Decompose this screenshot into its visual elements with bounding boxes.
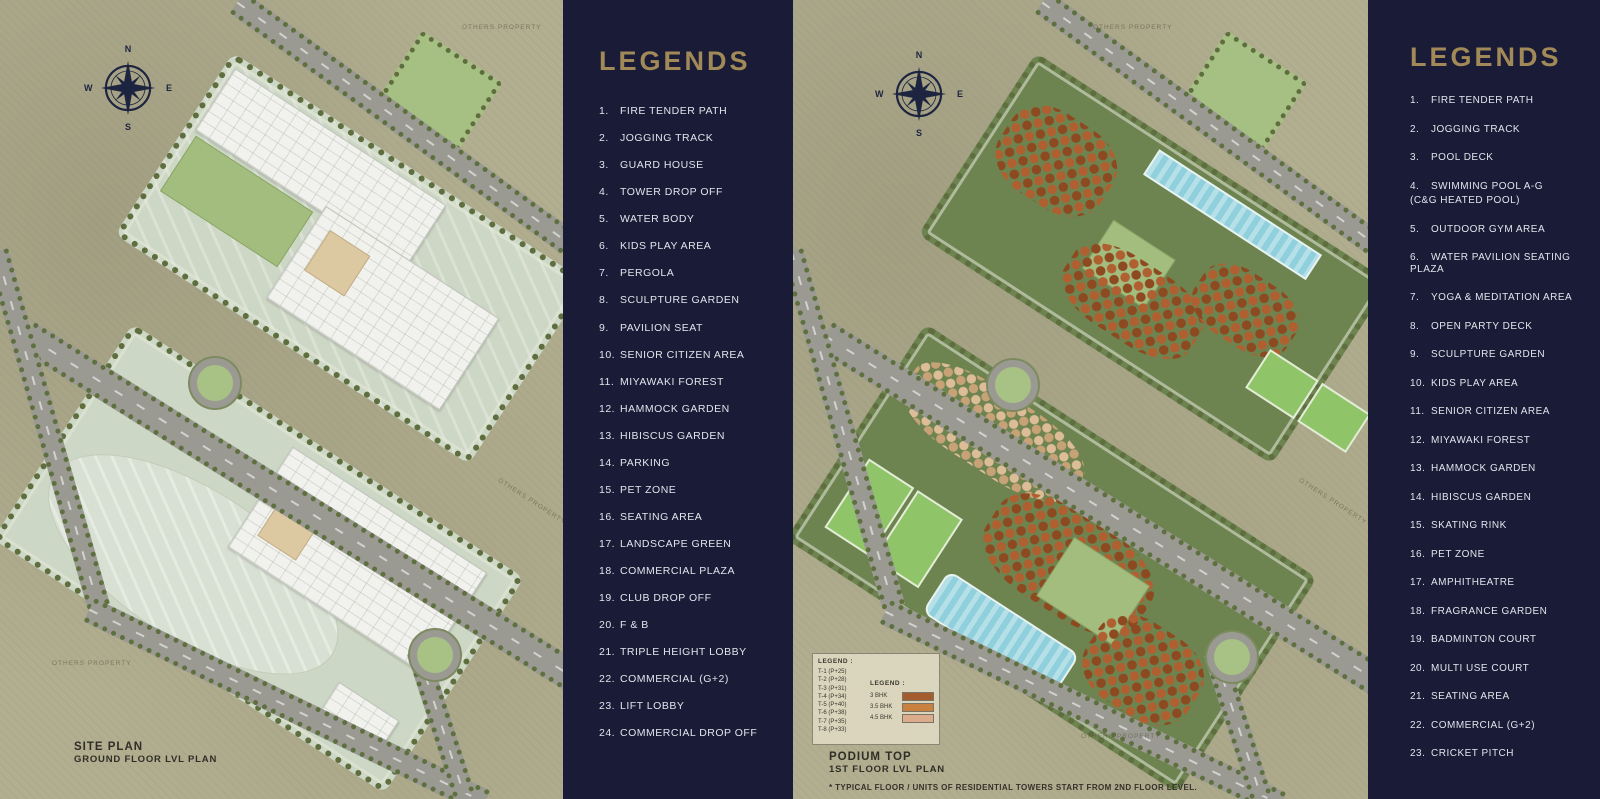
compass-label-s: S xyxy=(916,128,922,138)
item-number: 5. xyxy=(1410,224,1431,236)
compass-label-n: N xyxy=(916,50,923,60)
legend-item: 15.SKATING RINK xyxy=(1410,520,1594,532)
legend-item: 10.KIDS PLAY AREA xyxy=(1410,378,1594,390)
item-label: MULTI USE COURT xyxy=(1431,663,1529,674)
property-label: OTHERS PROPERTY xyxy=(1093,24,1173,31)
bhk-row: 3.5 BHK xyxy=(870,702,934,713)
item-label: HAMMOCK GARDEN xyxy=(620,403,730,415)
item-label: FIRE TENDER PATH xyxy=(620,105,727,117)
compass-label-w: W xyxy=(84,83,93,93)
roundabout xyxy=(190,358,240,408)
legend-item: 22.COMMERCIAL (G+2) xyxy=(599,673,787,685)
tower-cluster xyxy=(981,90,1132,233)
tower-row: T-3 (P+31) xyxy=(818,685,870,693)
bhk-swatch xyxy=(902,692,934,701)
legend-item: 3.GUARD HOUSE xyxy=(599,159,787,171)
item-number: 14. xyxy=(1410,492,1431,504)
legend-item: 1.FIRE TENDER PATH xyxy=(599,105,787,117)
legend-item: 6.WATER PAVILION SEATING PLAZA xyxy=(1410,252,1594,275)
item-number: 6. xyxy=(1410,252,1431,264)
item-label: HIBISCUS GARDEN xyxy=(620,430,725,442)
item-label: TRIPLE HEIGHT LOBBY xyxy=(620,646,747,658)
item-number: 16. xyxy=(1410,549,1431,561)
tower-legend-heading: LEGEND : xyxy=(818,658,934,665)
item-label: COMMERCIAL (G+2) xyxy=(1431,720,1535,731)
item-number: 5. xyxy=(599,213,620,225)
item-label: COMMERCIAL PLAZA xyxy=(620,565,735,577)
legend-panel-left: LEGENDS 1.FIRE TENDER PATH 2.JOGGING TRA… xyxy=(563,0,793,799)
item-label: SENIOR CITIZEN AREA xyxy=(1431,406,1550,417)
site-plan-map: N E S W OTHERS PROPERTY OTHERS PROPERTY … xyxy=(0,0,563,799)
plan-subtitle: GROUND FLOOR LVL PLAN xyxy=(74,754,217,766)
tower-row: T-2 (P+28) xyxy=(818,676,870,684)
legend-item: 12.HAMMOCK GARDEN xyxy=(599,403,787,415)
compass-label-w: W xyxy=(875,89,884,99)
item-number: 15. xyxy=(599,484,620,496)
legend-item: 14.PARKING xyxy=(599,457,787,469)
item-number: 22. xyxy=(599,673,620,685)
item-label: HIBISCUS GARDEN xyxy=(1431,492,1531,503)
legend-title: LEGENDS xyxy=(1368,0,1600,73)
compass-rose-icon xyxy=(885,60,953,128)
item-number: 19. xyxy=(1410,634,1431,646)
item-number: 2. xyxy=(599,132,620,144)
legend-item: 8.SCULPTURE GARDEN xyxy=(599,294,787,306)
legend-item: 18.COMMERCIAL PLAZA xyxy=(599,565,787,577)
legend-item: 20.MULTI USE COURT xyxy=(1410,663,1594,675)
roundabout xyxy=(988,360,1038,410)
legend-item: 17.LANDSCAPE GREEN xyxy=(599,538,787,550)
bhk-swatch xyxy=(902,714,934,723)
item-label: GUARD HOUSE xyxy=(620,159,704,171)
item-number: 13. xyxy=(599,430,620,442)
legend-item: 8.OPEN PARTY DECK xyxy=(1410,321,1594,333)
roundabout xyxy=(410,630,460,680)
bhk-label: 3.5 BHK xyxy=(870,702,892,713)
legend-title: LEGENDS xyxy=(563,0,793,77)
item-label: FRAGRANCE GARDEN xyxy=(1431,606,1547,617)
item-number: 10. xyxy=(599,349,620,361)
property-label: OTHERS PROPERTY xyxy=(52,660,132,667)
item-label: PET ZONE xyxy=(1431,549,1485,560)
item-label: OPEN PARTY DECK xyxy=(1431,321,1532,332)
item-number: 11. xyxy=(1410,406,1431,418)
item-label: KIDS PLAY AREA xyxy=(1431,378,1518,389)
bhk-swatch xyxy=(902,703,934,712)
legend-item: 17.AMPHITHEATRE xyxy=(1410,577,1594,589)
legend-item: 2.JOGGING TRACK xyxy=(1410,124,1594,136)
item-number: 17. xyxy=(599,538,620,550)
item-number: 7. xyxy=(599,267,620,279)
item-number: 22. xyxy=(1410,720,1431,732)
legend-item: 23.CRICKET PITCH xyxy=(1410,748,1594,760)
item-label: SCULPTURE GARDEN xyxy=(620,294,739,306)
item-label: SEATING AREA xyxy=(620,511,702,523)
legend-item: 12.MIYAWAKI FOREST xyxy=(1410,435,1594,447)
legend-item: 20.F & B xyxy=(599,619,787,631)
item-label: COMMERCIAL DROP OFF xyxy=(620,727,757,739)
item-number: 24. xyxy=(599,727,620,739)
bhk-row: 3 BHK xyxy=(870,691,934,702)
item-label: PERGOLA xyxy=(620,267,674,279)
legend-item: 2.JOGGING TRACK xyxy=(599,132,787,144)
tower-row: T-4 (P+34) xyxy=(818,693,870,701)
legend-item: 21.SEATING AREA xyxy=(1410,691,1594,703)
legend-item: 11.MIYAWAKI FOREST xyxy=(599,376,787,388)
tower-row: T-5 (P+40) xyxy=(818,701,870,709)
legend-item: 13.HAMMOCK GARDEN xyxy=(1410,463,1594,475)
item-number: 1. xyxy=(1410,95,1431,107)
item-number: 21. xyxy=(599,646,620,658)
item-label: WATER BODY xyxy=(620,213,694,225)
item-number: 8. xyxy=(599,294,620,306)
item-label: SENIOR CITIZEN AREA xyxy=(620,349,744,361)
tower-row: T-7 (P+35) xyxy=(818,718,870,726)
item-label: FIRE TENDER PATH xyxy=(1431,95,1533,106)
item-label: CLUB DROP OFF xyxy=(620,592,711,604)
tower-list: T-1 (P+25) T-2 (P+28) T-3 (P+31) T-4 (P+… xyxy=(818,668,870,734)
plan-title: SITE PLAN xyxy=(74,740,217,754)
legend-item: 6.KIDS PLAY AREA xyxy=(599,240,787,252)
legend-list: 1.FIRE TENDER PATH 2.JOGGING TRACK 3.GUA… xyxy=(563,77,793,740)
item-label: MIYAWAKI FOREST xyxy=(620,376,724,388)
item-number: 21. xyxy=(1410,691,1431,703)
compass-icon: N E S W xyxy=(877,52,961,136)
item-number: 17. xyxy=(1410,577,1431,589)
item-label: JOGGING TRACK xyxy=(1431,124,1520,135)
item-number: 8. xyxy=(1410,321,1431,333)
plan-title-block: SITE PLAN GROUND FLOOR LVL PLAN xyxy=(74,740,217,766)
item-number: 16. xyxy=(599,511,620,523)
compass-label-n: N xyxy=(125,44,132,54)
item-number: 18. xyxy=(1410,606,1431,618)
item-number: 6. xyxy=(599,240,620,252)
tower-legend-box: LEGEND : T-1 (P+25) T-2 (P+28) T-3 (P+31… xyxy=(812,653,940,745)
legend-item: 15.PET ZONE xyxy=(599,484,787,496)
item-number: 3. xyxy=(1410,152,1431,164)
item-label: SEATING AREA xyxy=(1431,691,1510,702)
item-number: 2. xyxy=(1410,124,1431,136)
legend-item: 9.PAVILION SEAT xyxy=(599,322,787,334)
legend-item: 14.HIBISCUS GARDEN xyxy=(1410,492,1594,504)
item-number: 3. xyxy=(599,159,620,171)
item-number: 4. xyxy=(599,186,620,198)
item-number: 12. xyxy=(599,403,620,415)
item-label: PARKING xyxy=(620,457,670,469)
legend-item: 1.FIRE TENDER PATH xyxy=(1410,95,1594,107)
item-label: HAMMOCK GARDEN xyxy=(1431,463,1536,474)
compass-label-e: E xyxy=(957,89,963,99)
item-number: 12. xyxy=(1410,435,1431,447)
tower-row: T-8 (P+33) xyxy=(818,726,870,734)
item-number: 20. xyxy=(1410,663,1431,675)
item-label: F & B xyxy=(620,619,649,631)
item-label: PET ZONE xyxy=(620,484,676,496)
property-label: OTHERS PROPERTY xyxy=(1081,733,1161,740)
item-number: 15. xyxy=(1410,520,1431,532)
item-label: CRICKET PITCH xyxy=(1431,748,1514,759)
item-number: 19. xyxy=(599,592,620,604)
item-number: 23. xyxy=(599,700,620,712)
legend-item: 16.SEATING AREA xyxy=(599,511,787,523)
legend-item: 22.COMMERCIAL (G+2) xyxy=(1410,720,1594,732)
item-number: 20. xyxy=(599,619,620,631)
disclaimer-note: * TYPICAL FLOOR / UNITS OF RESIDENTIAL T… xyxy=(829,783,1249,792)
item-number: 11. xyxy=(599,376,620,388)
tower-row: T-6 (P+38) xyxy=(818,709,870,717)
item-label: JOGGING TRACK xyxy=(620,132,713,144)
legend-item: 11.SENIOR CITIZEN AREA xyxy=(1410,406,1594,418)
item-label: LANDSCAPE GREEN xyxy=(620,538,731,550)
tower-row: T-1 (P+25) xyxy=(818,668,870,676)
item-label: SCULPTURE GARDEN xyxy=(1431,349,1545,360)
item-number: 23. xyxy=(1410,748,1431,760)
compass-icon: N E S W xyxy=(86,46,170,130)
compass-label-s: S xyxy=(125,122,131,132)
legend-panel-right: LEGENDS 1.FIRE TENDER PATH 2.JOGGING TRA… xyxy=(1368,0,1600,799)
legend-item: 19.CLUB DROP OFF xyxy=(599,592,787,604)
item-label: BADMINTON COURT xyxy=(1431,634,1536,645)
item-label: YOGA & MEDITATION AREA xyxy=(1431,292,1572,303)
legend-item: 18.FRAGRANCE GARDEN xyxy=(1410,606,1594,618)
legend-item: 9.SCULPTURE GARDEN xyxy=(1410,349,1594,361)
legend-item: 23.LIFT LOBBY xyxy=(599,700,787,712)
item-number: 9. xyxy=(599,322,620,334)
bhk-label: 4.5 BHK xyxy=(870,713,892,724)
legend-list: 1.FIRE TENDER PATH 2.JOGGING TRACK 3.POO… xyxy=(1368,73,1600,760)
roundabout xyxy=(1207,632,1257,682)
plan-title: PODIUM TOP xyxy=(829,750,945,764)
legend-item: 13.HIBISCUS GARDEN xyxy=(599,430,787,442)
property-label: OTHERS PROPERTY xyxy=(1298,477,1368,526)
master-plan-poster: N E S W OTHERS PROPERTY OTHERS PROPERTY … xyxy=(0,0,1600,799)
item-label: SKATING RINK xyxy=(1431,520,1507,531)
legend-item: 21.TRIPLE HEIGHT LOBBY xyxy=(599,646,787,658)
item-number: 13. xyxy=(1410,463,1431,475)
item-label: WATER PAVILION SEATING PLAZA xyxy=(1410,252,1570,275)
item-number: 10. xyxy=(1410,378,1431,390)
bhk-row: 4.5 BHK xyxy=(870,713,934,724)
item-label: SWIMMING POOL A-G xyxy=(1431,181,1543,192)
item-number: 14. xyxy=(599,457,620,469)
item-label: OUTDOOR GYM AREA xyxy=(1431,224,1545,235)
item-label-line2: (C&G HEATED POOL) xyxy=(1410,195,1594,207)
item-label: COMMERCIAL (G+2) xyxy=(620,673,729,685)
item-number: 4. xyxy=(1410,181,1431,193)
item-label: POOL DECK xyxy=(1431,152,1493,163)
compass-label-e: E xyxy=(166,83,172,93)
bhk-list: 3 BHK 3.5 BHK 4.5 BHK xyxy=(870,691,934,724)
compass-rose-icon xyxy=(94,54,162,122)
bhk-label: 3 BHK xyxy=(870,691,887,702)
legend-item: 4.SWIMMING POOL A-G (C&G HEATED POOL) xyxy=(1410,181,1594,207)
item-label: TOWER DROP OFF xyxy=(620,186,723,198)
item-label: KIDS PLAY AREA xyxy=(620,240,711,252)
item-label: PAVILION SEAT xyxy=(620,322,703,334)
legend-item: 7.YOGA & MEDITATION AREA xyxy=(1410,292,1594,304)
item-label: AMPHITHEATRE xyxy=(1431,577,1515,588)
legend-item: 3.POOL DECK xyxy=(1410,152,1594,164)
legend-item: 5.OUTDOOR GYM AREA xyxy=(1410,224,1594,236)
item-number: 1. xyxy=(599,105,620,117)
legend-item: 5.WATER BODY xyxy=(599,213,787,225)
property-label: OTHERS PROPERTY xyxy=(462,24,542,31)
legend-item: 16.PET ZONE xyxy=(1410,549,1594,561)
item-number: 18. xyxy=(599,565,620,577)
legend-item: 19.BADMINTON COURT xyxy=(1410,634,1594,646)
legend-item: 7.PERGOLA xyxy=(599,267,787,279)
podium-plan-map: N E S W OTHERS PROPERTY OTHERS PROPERTY … xyxy=(793,0,1368,799)
item-number: 9. xyxy=(1410,349,1431,361)
plan-title-block: PODIUM TOP 1ST FLOOR LVL PLAN xyxy=(829,750,945,776)
legend-item: 4.TOWER DROP OFF xyxy=(599,186,787,198)
plan-subtitle: 1ST FLOOR LVL PLAN xyxy=(829,764,945,776)
item-number: 7. xyxy=(1410,292,1431,304)
bhk-legend-heading: LEGEND : xyxy=(870,680,934,687)
item-label: MIYAWAKI FOREST xyxy=(1431,435,1530,446)
property-label: OTHERS PROPERTY xyxy=(497,477,563,526)
item-label: LIFT LOBBY xyxy=(620,700,684,712)
legend-item: 24.COMMERCIAL DROP OFF xyxy=(599,727,787,739)
legend-item: 10.SENIOR CITIZEN AREA xyxy=(599,349,787,361)
